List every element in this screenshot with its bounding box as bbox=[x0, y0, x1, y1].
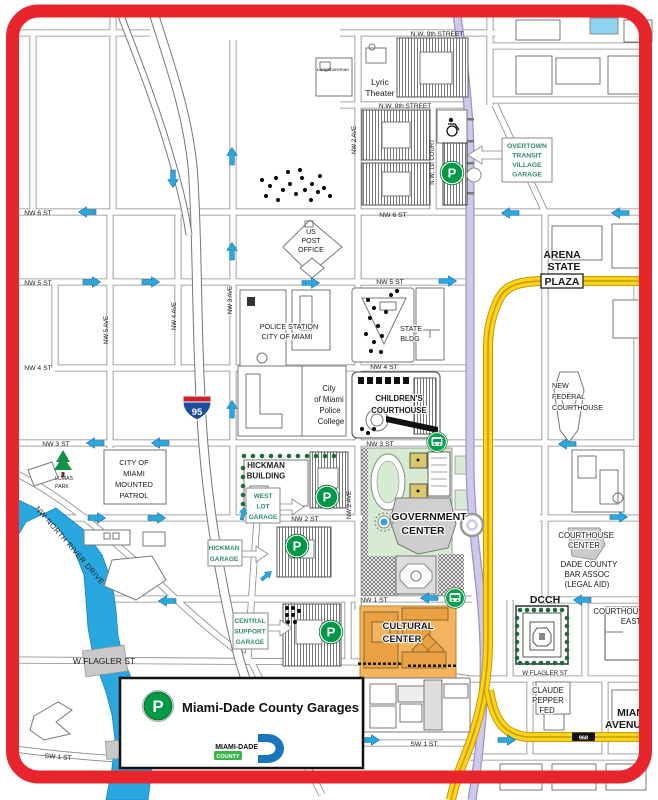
tree-dot bbox=[293, 620, 297, 624]
west-lot-garage-2: LOT bbox=[257, 504, 270, 511]
tree-icon bbox=[518, 608, 523, 613]
tree-icon bbox=[269, 454, 274, 459]
police-college-4: College bbox=[318, 417, 344, 426]
tree-icon bbox=[241, 484, 246, 489]
us-post-office-2: POST bbox=[301, 238, 321, 245]
tree-icon bbox=[565, 616, 570, 621]
tree-dot bbox=[298, 168, 302, 172]
tree-dot bbox=[260, 178, 264, 182]
central-support-2: SUPPORT bbox=[234, 629, 265, 636]
tree-icon bbox=[287, 454, 292, 459]
tree-dot bbox=[268, 184, 272, 188]
tree-dot bbox=[286, 170, 290, 174]
tree-dot bbox=[379, 350, 383, 354]
ave-nw1-court: N.W. 1st COURT bbox=[430, 139, 436, 185]
tree-dot bbox=[294, 192, 298, 196]
hickman-garage-1: HICKMAN bbox=[209, 545, 240, 552]
ave-nw2-south: NW 2 AVE bbox=[347, 491, 353, 519]
police-college-1: City bbox=[322, 384, 336, 393]
tree-dot bbox=[281, 188, 285, 192]
ave-nw3: NW 3 AVE bbox=[228, 286, 234, 314]
street-nw3-west: NW 3 ST bbox=[42, 441, 70, 448]
mounted-patrol-1: CITY OF bbox=[119, 458, 149, 467]
tree-dot bbox=[360, 427, 364, 431]
tree-icon bbox=[532, 608, 537, 613]
us-post-office-3: OFFICE bbox=[298, 247, 324, 254]
tree-dot bbox=[395, 289, 399, 293]
street-nw5-east: NW 5 ST bbox=[376, 279, 404, 286]
tree-dot bbox=[276, 198, 280, 202]
tree-icon bbox=[515, 632, 520, 637]
dcch: DCCH bbox=[530, 594, 560, 606]
overtown-garage-2: TRANSIT bbox=[512, 153, 542, 160]
i95-number: 95 bbox=[192, 407, 203, 418]
claude-pepper-2: PEPPER bbox=[532, 696, 564, 705]
tree-dot bbox=[300, 176, 304, 180]
overtown-garage-1: OVERTOWN bbox=[507, 143, 547, 150]
tree-icon bbox=[260, 454, 265, 459]
police-college-3: Police bbox=[319, 406, 340, 415]
route-shield-number: 968 bbox=[579, 735, 588, 741]
tree-dot bbox=[297, 609, 301, 613]
street-nw5-west: NW 5 ST bbox=[24, 280, 52, 287]
cultural-center-1: CULTURAL bbox=[382, 621, 433, 632]
tree-icon bbox=[323, 454, 328, 459]
parking-letter: P bbox=[323, 490, 332, 505]
tree-icon bbox=[546, 608, 551, 613]
tree-icon bbox=[332, 454, 337, 459]
new-federal-2: FEDERAL bbox=[552, 392, 585, 401]
legend-parking-letter: P bbox=[152, 697, 163, 716]
tree-icon bbox=[314, 454, 319, 459]
courthouse-center-2: CENTER bbox=[568, 541, 600, 550]
parking-letter: P bbox=[293, 539, 302, 554]
tree-dot bbox=[366, 298, 370, 302]
tree-icon bbox=[565, 624, 570, 629]
mounted-patrol-3: MOUNTED bbox=[115, 480, 153, 489]
tree-icon bbox=[251, 454, 256, 459]
ave-nw5: NW 5 AVE bbox=[104, 316, 110, 344]
tree-icon bbox=[560, 661, 565, 666]
courthouse-east-2: EAST bbox=[621, 617, 642, 626]
street-nw9: N.W. 9th STREET bbox=[411, 31, 463, 38]
dcch-building bbox=[516, 606, 568, 664]
lyric-theater-1: Lyric bbox=[371, 77, 389, 87]
tree-dot bbox=[369, 349, 373, 353]
tree-icon bbox=[539, 661, 544, 666]
tree-icon bbox=[565, 656, 570, 661]
tree-dot bbox=[285, 613, 289, 617]
west-lot-garage-3: GARAGE bbox=[249, 514, 278, 521]
tree-icon bbox=[515, 616, 520, 621]
courthouse-center-1: COURTHOUSE bbox=[558, 531, 613, 540]
bar-assoc-1: DADE COUNTY bbox=[561, 560, 619, 569]
logo-miami-dade-text: MIAMI-DADE bbox=[215, 744, 258, 751]
cultural-center-2: CENTER bbox=[382, 634, 421, 645]
tree-icon bbox=[515, 624, 520, 629]
central-support-3: GARAGE bbox=[236, 639, 265, 646]
hickman-building-2: BUILDING bbox=[247, 472, 286, 481]
tree-dot bbox=[389, 293, 393, 297]
lyric-theater-2: Theater bbox=[365, 88, 394, 98]
tree-icon bbox=[518, 661, 523, 666]
plaza: PLAZA bbox=[545, 276, 580, 288]
tree-dot bbox=[372, 427, 376, 431]
central-support-1: CENTRAL bbox=[234, 618, 265, 625]
tree-dot bbox=[291, 613, 295, 617]
hickman-building-1: HICKMAN bbox=[247, 461, 285, 470]
tree-dot bbox=[316, 190, 320, 194]
tree-dot bbox=[288, 182, 292, 186]
lumas-park-2: PARK bbox=[55, 484, 69, 490]
ave-nw4: NW 4 AVE bbox=[172, 302, 178, 330]
mounted-patrol-4: PATROL bbox=[120, 491, 149, 500]
tree-icon bbox=[546, 661, 551, 666]
legend-title: Miami-Dade County Garages bbox=[182, 700, 359, 715]
bar-assoc-3: (LEGAL AID) bbox=[565, 580, 610, 589]
tree-dot bbox=[264, 194, 268, 198]
street-flagler-east: W FLAGLER ST bbox=[522, 670, 568, 677]
metromover-station-icon bbox=[427, 432, 447, 452]
us-post-office-1: US bbox=[306, 229, 316, 236]
tree-dot bbox=[318, 174, 322, 178]
tree-dot bbox=[376, 324, 380, 328]
tree-icon bbox=[242, 454, 247, 459]
street-nw1: NW 1 ST bbox=[360, 597, 388, 604]
overtown-garage-4: GARAGE bbox=[512, 172, 542, 179]
arena: ARENA bbox=[543, 249, 581, 261]
tree-dot bbox=[309, 198, 313, 202]
tree-dot bbox=[322, 186, 326, 190]
street-flagler-west: W FLAGLER ST bbox=[73, 656, 135, 666]
parking-garage-marker: P bbox=[315, 485, 339, 509]
tree-dot bbox=[291, 606, 295, 610]
new-federal-1: NEW bbox=[552, 381, 569, 390]
tree-dot bbox=[310, 182, 314, 186]
bar-assoc-2: BAR ASSOC bbox=[564, 570, 609, 579]
claude-pepper-3: FED bbox=[539, 706, 555, 715]
childrens-courthouse-2: COURTHOUSE bbox=[371, 406, 426, 415]
tree-dot bbox=[285, 606, 289, 610]
childrens-courthouse-building bbox=[352, 372, 440, 438]
route-shield: 968 bbox=[572, 733, 595, 742]
street-nw2: NW 2 ST bbox=[291, 516, 319, 523]
west-lot-garage-1: WEST bbox=[254, 493, 273, 500]
tree-dot bbox=[328, 194, 332, 198]
parking-letter: P bbox=[448, 166, 457, 181]
tree-icon bbox=[241, 466, 246, 471]
tree-dot bbox=[380, 334, 384, 338]
street-nw8: N.W. 8th STREET bbox=[379, 103, 431, 110]
tree-dot bbox=[372, 306, 376, 310]
overtown-garage-3: VILLAGE bbox=[512, 162, 542, 169]
street-sw1-east: SW 1 ST bbox=[410, 741, 437, 748]
legend: P Miami-Dade County Garages MIAMI-DADE C… bbox=[120, 678, 363, 768]
tree-icon bbox=[241, 475, 246, 480]
parking-letter: P bbox=[327, 625, 336, 640]
police-college-2: of Miami bbox=[314, 395, 344, 404]
tree-icon bbox=[241, 502, 246, 507]
tree-icon bbox=[565, 648, 570, 653]
mounted-patrol-2: MIAMI bbox=[123, 469, 145, 478]
street-nw6-east: NW 6 ST bbox=[379, 212, 407, 219]
tree-icon bbox=[560, 608, 565, 613]
tree-dot bbox=[372, 340, 376, 344]
tree-icon bbox=[553, 608, 558, 613]
pool bbox=[590, 18, 618, 34]
ave-nw2-north: NW 2 AVE bbox=[352, 126, 358, 154]
street-nw4-west: NW 4 ST bbox=[24, 365, 52, 372]
childrens-courthouse-1: CHILDREN'S bbox=[375, 394, 422, 403]
hickman-garage-2: GARAGE bbox=[210, 556, 239, 563]
parking-garage-marker: P bbox=[319, 620, 343, 644]
tree-dot bbox=[286, 620, 290, 624]
police-station-1: POLICE STATION bbox=[260, 322, 318, 331]
lumas-park-1: LUMAS bbox=[55, 476, 73, 482]
ramp-loop bbox=[467, 168, 481, 182]
tree-dot bbox=[366, 431, 370, 435]
state-plaza: STATE bbox=[548, 261, 581, 273]
tree-icon bbox=[296, 454, 301, 459]
tree-dot bbox=[364, 332, 368, 336]
tree-icon bbox=[553, 661, 558, 666]
tree-icon bbox=[565, 640, 570, 645]
tree-icon bbox=[565, 632, 570, 637]
tree-icon bbox=[525, 608, 530, 613]
street-nw3-east: NW 3 ST bbox=[366, 441, 394, 448]
claude-pepper-1: CLAUDE bbox=[532, 686, 564, 695]
tree-dot bbox=[368, 316, 372, 320]
miami-dade-garages-map: 95 PPPP 968 N.W. 9th STREETLyricTheaterL… bbox=[0, 0, 658, 800]
longshoreman: Longshoreman bbox=[317, 67, 349, 73]
state-bldg-2: BLDG bbox=[400, 334, 420, 343]
government-center-1: GOVERNMENT bbox=[391, 511, 467, 523]
tree-icon bbox=[305, 454, 310, 459]
tree-icon bbox=[515, 656, 520, 661]
tree-icon bbox=[278, 454, 283, 459]
tree-icon bbox=[539, 608, 544, 613]
street-nw4-east: NW 4 ST bbox=[370, 364, 398, 371]
tree-icon bbox=[532, 661, 537, 666]
tree-icon bbox=[241, 493, 246, 498]
parking-garage-marker: P bbox=[285, 534, 309, 558]
logo-county-text: COUNTY bbox=[216, 754, 240, 760]
tree-icon bbox=[525, 661, 530, 666]
metromover-station-icon bbox=[445, 588, 465, 608]
new-federal-3: COURTHOUSE bbox=[552, 403, 603, 412]
government-center-2: CENTER bbox=[401, 525, 445, 537]
tree-icon bbox=[515, 648, 520, 653]
tree-dot bbox=[274, 176, 278, 180]
tree-icon bbox=[515, 640, 520, 645]
parking-garage-marker: P bbox=[440, 161, 464, 185]
tree-dot bbox=[384, 310, 388, 314]
street-nw6-west: NW 6 ST bbox=[24, 210, 52, 217]
tree-dot bbox=[303, 188, 307, 192]
police-station-2: CITY OF MIAMI bbox=[262, 332, 313, 341]
state-bldg-1: STATE bbox=[400, 324, 422, 333]
